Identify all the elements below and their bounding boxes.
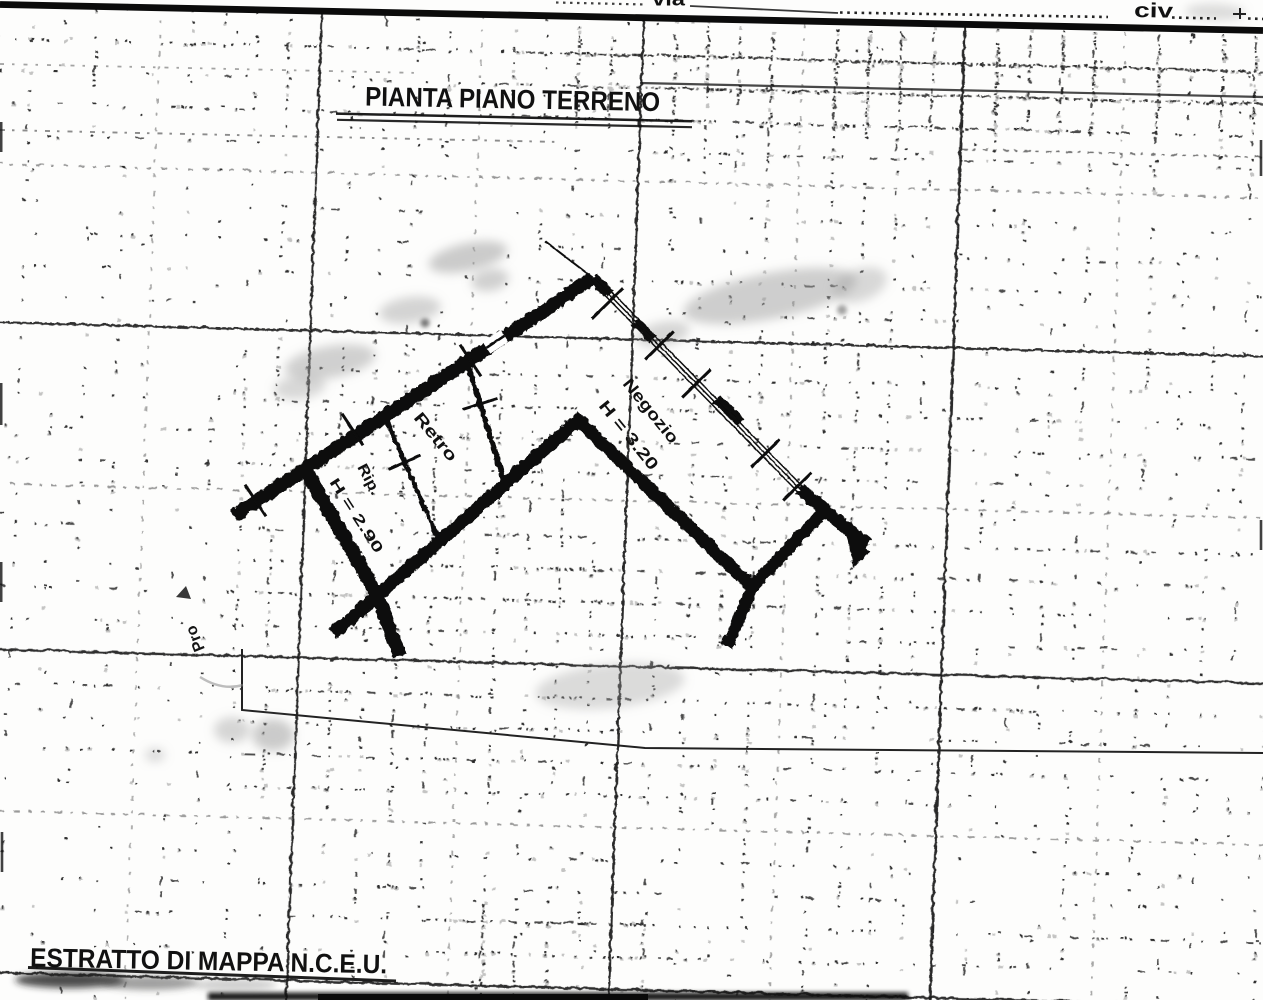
svg-text:PIANTA PIANO TERRENO: PIANTA PIANO TERRENO [365, 82, 661, 118]
svg-text:civ: civ [1134, 0, 1174, 23]
svg-text:via: via [652, 0, 686, 11]
